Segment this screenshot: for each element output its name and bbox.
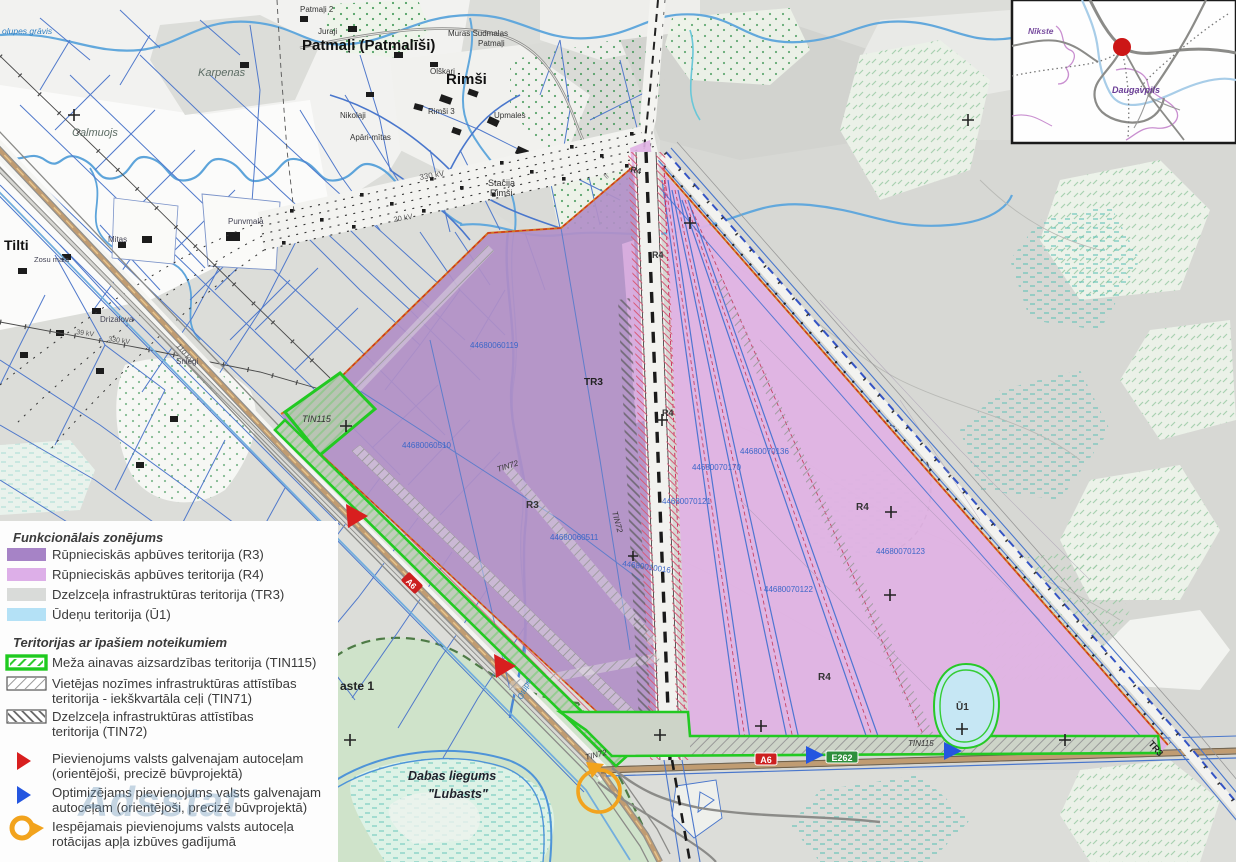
svg-text:44680060510: 44680060510 xyxy=(402,441,451,450)
svg-text:aste 1: aste 1 xyxy=(340,679,374,693)
svg-text:Nīkste: Nīkste xyxy=(1028,26,1054,36)
svg-text:Karpenas: Karpenas xyxy=(198,67,246,79)
svg-text:TIN115: TIN115 xyxy=(302,414,332,424)
svg-text:teritorija (TIN72): teritorija (TIN72) xyxy=(52,724,147,739)
svg-text:teritorija - iekškvartāla ceļi: teritorija - iekškvartāla ceļi (TIN71) xyxy=(52,691,252,706)
svg-text:R4: R4 xyxy=(856,502,869,513)
svg-text:Rūpnieciskās apbūves teritorij: Rūpnieciskās apbūves teritorija (R3) xyxy=(52,547,264,562)
svg-text:Tilti: Tilti xyxy=(4,237,29,253)
svg-text:TR3: TR3 xyxy=(584,377,603,388)
svg-text:Pievienojums valsts galvenajam: Pievienojums valsts galvenajam autoceļam xyxy=(52,751,303,766)
svg-text:R4: R4 xyxy=(652,250,664,260)
svg-text:Teritorijas ar īpašiem noteiku: Teritorijas ar īpašiem noteikumiem xyxy=(13,635,228,650)
svg-text:44680070121: 44680070121 xyxy=(662,497,711,506)
svg-text:Juraji: Juraji xyxy=(318,27,337,36)
svg-text:Ū1: Ū1 xyxy=(956,701,969,713)
svg-text:A6: A6 xyxy=(760,755,772,765)
svg-text:44680070122: 44680070122 xyxy=(764,585,813,594)
svg-text:44680070123: 44680070123 xyxy=(876,547,925,556)
svg-text:44680070170: 44680070170 xyxy=(692,463,741,472)
svg-text:Apāri-mītas: Apāri-mītas xyxy=(350,133,391,142)
svg-text:Punvmala: Punvmala xyxy=(228,217,264,226)
svg-text:Drizalova: Drizalova xyxy=(100,315,134,324)
svg-text:R4: R4 xyxy=(818,672,831,683)
svg-text:R4: R4 xyxy=(662,408,674,418)
svg-text:rotācijas apļa izbūves gadījum: rotācijas apļa izbūves gadījumā xyxy=(52,834,237,849)
svg-text:Funkcionālais zonējums: Funkcionālais zonējums xyxy=(13,530,163,545)
svg-text:Dzelzceļa infrastruktūras teri: Dzelzceļa infrastruktūras teritorija (TR… xyxy=(52,587,284,602)
svg-text:TIN115: TIN115 xyxy=(908,739,934,748)
svg-text:Ūdeņu teritorija (Ū1): Ūdeņu teritorija (Ū1) xyxy=(52,607,171,622)
svg-text:Rūpnieciskās apbūves teritorij: Rūpnieciskās apbūves teritorija (R4) xyxy=(52,567,264,582)
svg-text:olupes grāvis: olupes grāvis xyxy=(2,26,53,36)
svg-text:Dabas liegums: Dabas liegums xyxy=(408,769,496,783)
svg-text:Rimši 3: Rimši 3 xyxy=(428,107,455,116)
svg-text:Nikolaji: Nikolaji xyxy=(340,111,366,120)
svg-text:Muras Sudmalas: Muras Sudmalas xyxy=(448,29,508,38)
svg-text:Meža ainavas aizsardzības teri: Meža ainavas aizsardzības teritorija (TI… xyxy=(52,655,316,670)
svg-text:Olškari: Olškari xyxy=(430,67,455,76)
svg-text:E262: E262 xyxy=(831,753,852,763)
svg-text:Calmuojs: Calmuojs xyxy=(72,127,118,139)
svg-text:R3: R3 xyxy=(526,500,539,511)
svg-text:Patmaļi (Patmalīši): Patmaļi (Patmalīši) xyxy=(302,37,435,54)
svg-text:44680060119: 44680060119 xyxy=(470,341,519,350)
svg-text:Rimši: Rimši xyxy=(490,188,513,198)
svg-text:Daugavpils: Daugavpils xyxy=(1112,85,1160,95)
svg-text:Dzelzceļa infrastruktūras attī: Dzelzceļa infrastruktūras attīstības xyxy=(52,709,254,724)
svg-text:Upmales: Upmales xyxy=(494,111,526,120)
svg-text:Zosu mala: Zosu mala xyxy=(34,255,70,264)
svg-text:Patmaļi: Patmaļi xyxy=(478,39,505,48)
svg-text:44680070136: 44680070136 xyxy=(740,447,789,456)
svg-text:"Lubasts": "Lubasts" xyxy=(428,787,489,801)
svg-text:Patmaļi 2: Patmaļi 2 xyxy=(300,5,334,14)
svg-text:Stacija: Stacija xyxy=(488,178,515,188)
svg-text:Adsstat: Adsstat xyxy=(77,778,240,825)
svg-text:Mitas: Mitas xyxy=(108,235,127,244)
svg-text:Vietējas nozīmes infrastruktūr: Vietējas nozīmes infrastruktūras attīstī… xyxy=(52,676,297,691)
svg-text:44680060511: 44680060511 xyxy=(550,533,599,542)
